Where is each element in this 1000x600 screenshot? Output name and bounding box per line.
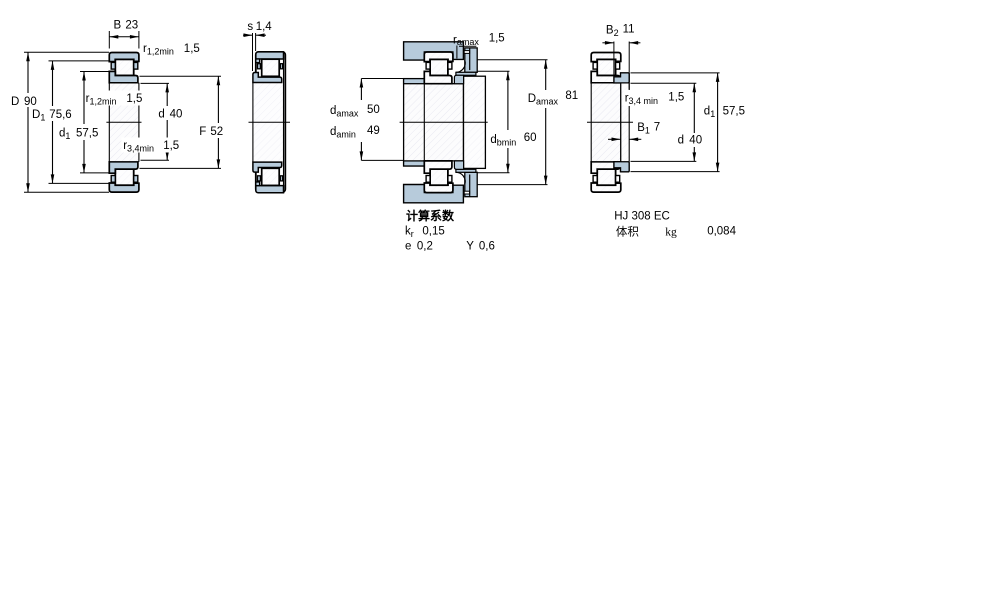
svg-text:1,4: 1,4 bbox=[256, 21, 273, 33]
svg-text:B: B bbox=[114, 20, 122, 32]
svg-text:11: 11 bbox=[623, 24, 635, 36]
svg-text:0,6: 0,6 bbox=[479, 241, 495, 253]
svg-text:0,084: 0,084 bbox=[707, 226, 736, 238]
svg-text:HJ 308 EC: HJ 308 EC bbox=[614, 211, 670, 223]
svg-text:40: 40 bbox=[170, 109, 183, 121]
svg-text:57,5: 57,5 bbox=[723, 106, 745, 118]
svg-text:60: 60 bbox=[524, 132, 537, 144]
svg-text:1,5: 1,5 bbox=[184, 43, 200, 55]
svg-text:Y: Y bbox=[466, 241, 474, 253]
svg-text:s: s bbox=[247, 21, 253, 33]
svg-text:D: D bbox=[11, 96, 19, 108]
svg-text:0,2: 0,2 bbox=[417, 241, 433, 253]
svg-text:计算系数: 计算系数 bbox=[406, 208, 455, 223]
svg-text:81: 81 bbox=[565, 90, 578, 102]
svg-text:1,5: 1,5 bbox=[489, 33, 505, 45]
svg-text:57,5: 57,5 bbox=[76, 127, 98, 139]
svg-text:1,5: 1,5 bbox=[163, 140, 179, 152]
svg-text:d: d bbox=[678, 135, 684, 147]
svg-text:1,5: 1,5 bbox=[668, 92, 684, 104]
svg-text:d: d bbox=[158, 109, 164, 121]
svg-text:40: 40 bbox=[689, 135, 702, 147]
svg-text:52: 52 bbox=[210, 126, 223, 138]
svg-text:F: F bbox=[199, 126, 206, 138]
svg-text:7: 7 bbox=[654, 122, 660, 134]
svg-text:e: e bbox=[405, 241, 411, 253]
svg-text:1,5: 1,5 bbox=[126, 93, 142, 105]
svg-text:kg: kg bbox=[665, 227, 677, 239]
svg-text:50: 50 bbox=[367, 104, 380, 116]
svg-text:0,15: 0,15 bbox=[422, 226, 444, 238]
svg-text:ramax: ramax bbox=[453, 35, 479, 47]
svg-text:90: 90 bbox=[24, 96, 37, 108]
svg-text:75,6: 75,6 bbox=[49, 109, 71, 121]
svg-text:23: 23 bbox=[125, 20, 138, 32]
svg-text:49: 49 bbox=[367, 125, 380, 137]
svg-text:体积: 体积 bbox=[616, 225, 639, 239]
